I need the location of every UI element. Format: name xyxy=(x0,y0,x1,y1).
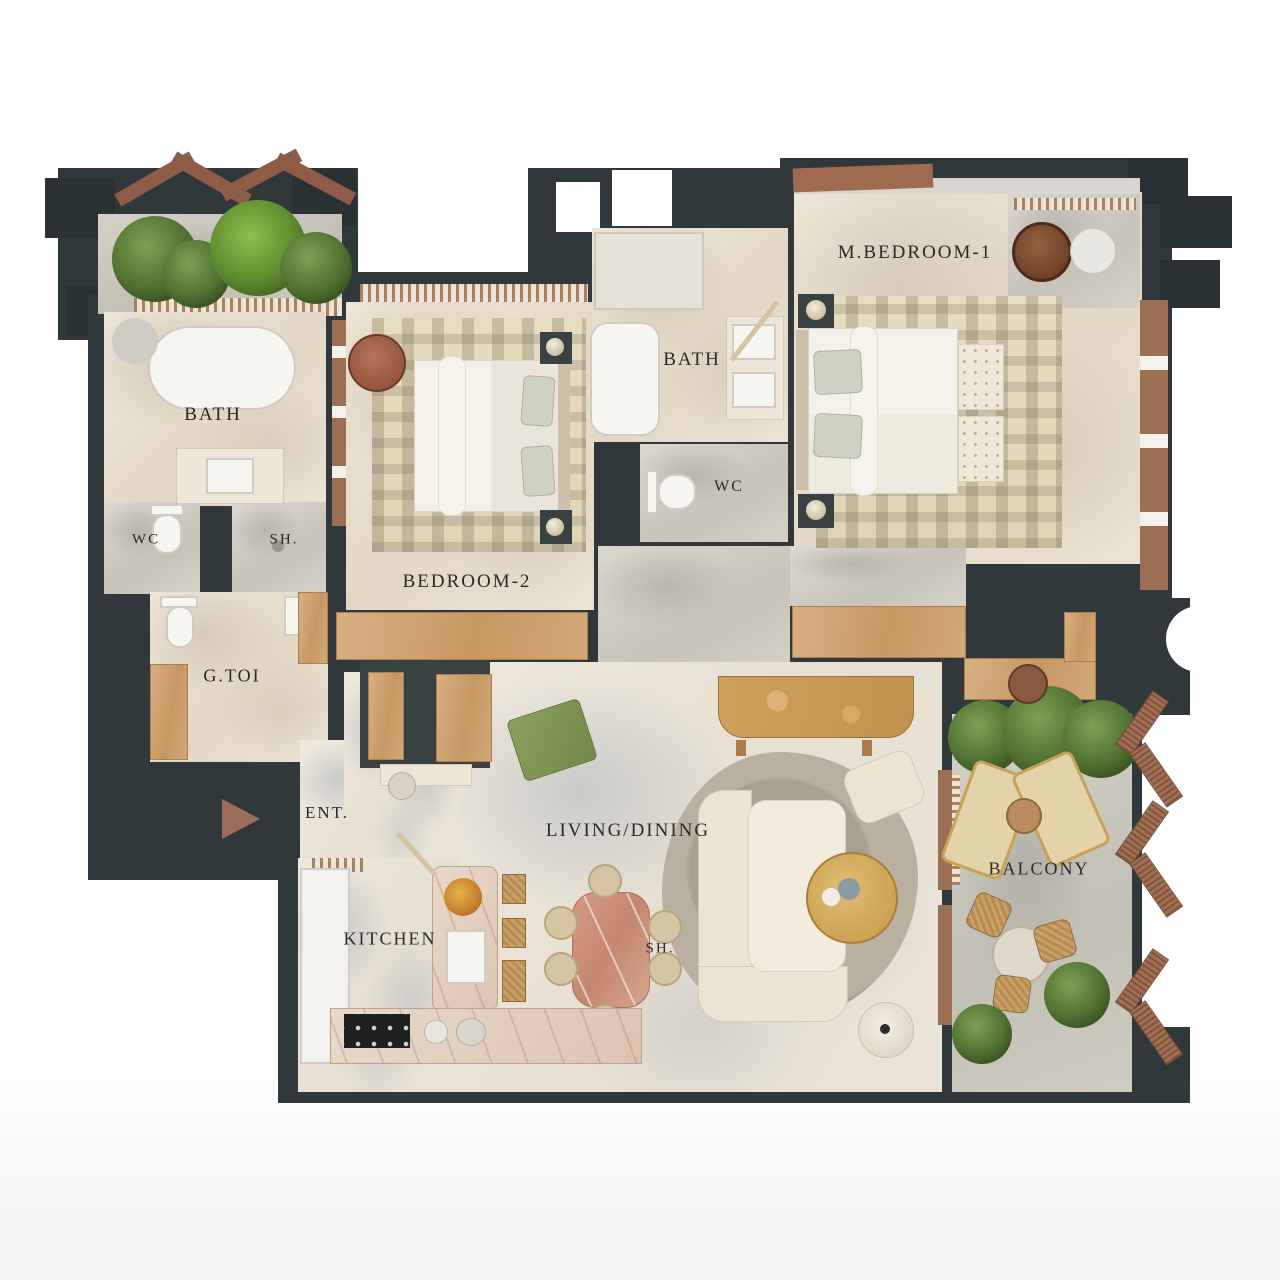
pillow xyxy=(520,445,555,497)
master-roof-slab xyxy=(793,164,934,193)
closet-cabinet xyxy=(1064,612,1096,662)
facade-round-notch xyxy=(1166,606,1232,672)
living-balcony-window-frame xyxy=(938,905,952,1025)
counter-appliance xyxy=(456,1018,486,1046)
table-lamp xyxy=(806,300,826,320)
cooktop xyxy=(344,1014,410,1048)
hall-floor xyxy=(598,546,790,676)
shower-enclosure xyxy=(594,232,704,310)
room-label-wc-left: WC xyxy=(132,532,160,549)
dining-chair xyxy=(588,864,622,898)
bar-stool xyxy=(502,874,526,904)
toilet xyxy=(646,470,658,514)
bathtub xyxy=(590,322,660,436)
bedroom2-top-window xyxy=(360,284,588,302)
fruit-bowl xyxy=(444,878,482,916)
bedroom2-wardrobe xyxy=(336,612,588,660)
entry-cabinet xyxy=(368,672,404,760)
console-desk xyxy=(718,676,914,738)
sofa-chaise xyxy=(698,966,848,1022)
plant-pot xyxy=(1008,664,1048,704)
room-label-bedroom-2: BEDROOM-2 xyxy=(403,571,532,593)
room-label-ent: ENT. xyxy=(305,803,349,823)
room-label-sh-dining: SH. xyxy=(646,941,675,958)
bathtub xyxy=(148,326,296,410)
bedroom2-left-window-frame xyxy=(332,320,346,526)
pouf-button xyxy=(880,1024,890,1034)
room-label-m-bedroom-1: M.BEDROOM-1 xyxy=(838,242,992,264)
master-headboard xyxy=(796,330,808,490)
coffee-table-decor xyxy=(822,888,840,906)
bar-stool xyxy=(502,960,526,1002)
room-label-wc-master: WC xyxy=(714,478,744,496)
pillow xyxy=(813,349,863,395)
bath-stool xyxy=(112,318,158,364)
toilet-bowl xyxy=(658,474,696,510)
hall-wardrobe xyxy=(792,606,966,658)
floor-plan-page: { "plan": { "type": "apartment-floor-pla… xyxy=(0,0,1280,1280)
island-sink xyxy=(446,930,486,984)
hall-floor-master xyxy=(790,546,966,606)
gtoi-cabinet xyxy=(150,664,188,760)
entry-mirror xyxy=(388,772,416,800)
bed-bench xyxy=(958,416,1004,482)
desk-leg xyxy=(736,740,746,756)
facade-notch xyxy=(612,170,672,226)
master-right-window-frame xyxy=(1140,300,1168,590)
dining-chair xyxy=(544,952,578,986)
room-label-kitchen: KITCHEN xyxy=(344,929,437,950)
vanity-sink xyxy=(732,372,776,408)
facade-block xyxy=(1160,260,1220,308)
table-lamp xyxy=(806,500,826,520)
room-label-g-toi: G.TOI xyxy=(203,666,260,687)
bar-stool xyxy=(502,918,526,948)
coffee-table-decor xyxy=(838,878,860,900)
room-label-balcony: BALCONY xyxy=(988,859,1089,880)
pillow xyxy=(813,413,863,459)
bedroom2-duvet-fold xyxy=(438,356,466,516)
room-label-bath-master: BATH xyxy=(663,349,721,371)
dining-table xyxy=(572,892,650,1008)
master-planter xyxy=(1012,222,1072,282)
room-label-sh-left: SH. xyxy=(270,532,299,549)
bed-bench xyxy=(958,344,1004,410)
dining-chair xyxy=(544,906,578,940)
table-lamp xyxy=(546,338,564,356)
balcony-plant xyxy=(1044,962,1110,1028)
bedroom2-headboard xyxy=(558,354,570,516)
counter-appliance xyxy=(424,1020,448,1044)
gtoi-shelf xyxy=(298,592,328,664)
vanity-sink xyxy=(206,458,254,494)
room-label-living-dining: LIVING/DINING xyxy=(546,820,710,842)
terrace-plant xyxy=(280,232,352,304)
balcony-plant xyxy=(952,1004,1012,1064)
toilet-bowl xyxy=(166,606,194,648)
room-label-bath-left: BATH xyxy=(184,404,242,426)
desk-leg xyxy=(862,740,872,756)
table-lamp xyxy=(546,518,564,536)
master-window-fringe xyxy=(1014,198,1136,210)
facade-notch xyxy=(556,182,600,232)
entrance-arrow-icon xyxy=(222,799,260,839)
master-side-table xyxy=(1070,228,1116,274)
pillow xyxy=(520,375,555,427)
dining-chair xyxy=(648,910,682,944)
bedroom2-round-chair xyxy=(348,334,406,392)
entry-cabinet xyxy=(436,674,492,762)
balcony-stool xyxy=(1006,798,1042,834)
